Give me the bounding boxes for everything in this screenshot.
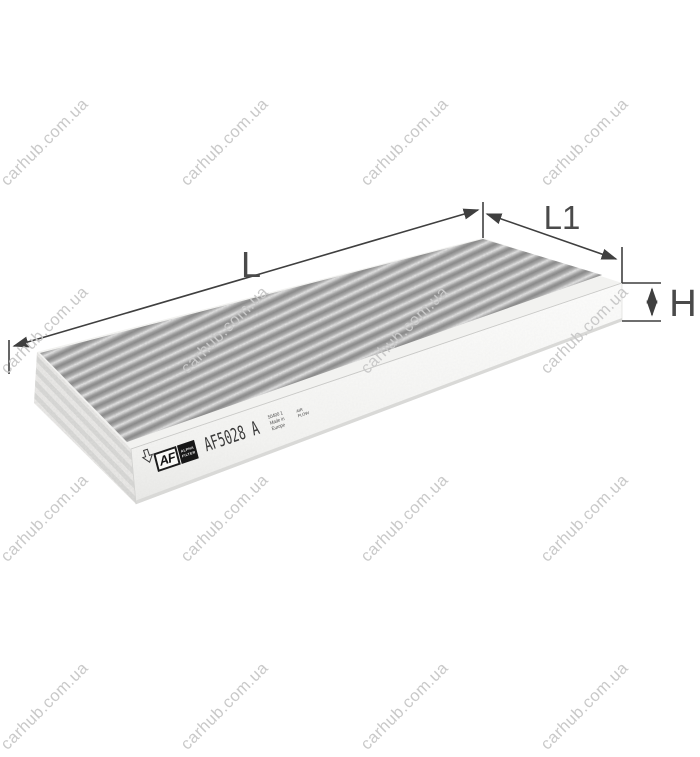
cabin-air-filter (34, 238, 622, 504)
dim-L1-label: L1 (544, 199, 581, 236)
filter-photo-svg: L L1 H (0, 0, 700, 700)
product-photo-stage: L L1 H AF ALPHA FILTER AF5028 A 50400 1 … (0, 0, 700, 700)
dim-L-label: L (241, 244, 261, 285)
dim-H-label: H (669, 283, 696, 325)
